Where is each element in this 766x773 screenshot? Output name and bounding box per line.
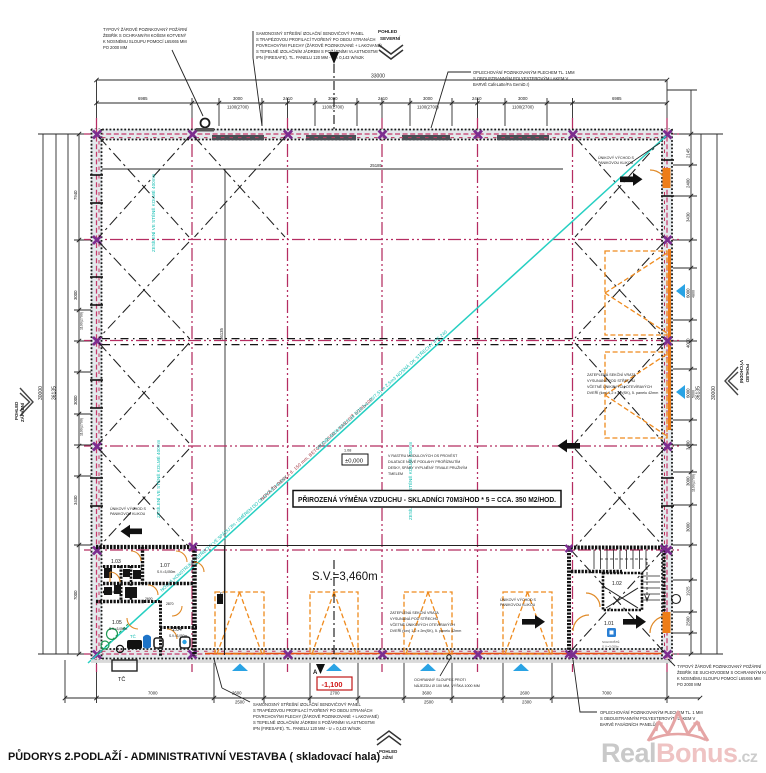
svg-text:S OBOUSTRANNÝM POLYESTEROVÝM L: S OBOUSTRANNÝM POLYESTEROVÝM LAKEM V xyxy=(473,76,569,81)
svg-text:SCHODIŠTĚ: SCHODIŠTĚ xyxy=(602,639,620,644)
svg-text:POHLED: POHLED xyxy=(14,402,19,420)
svg-text:SAMONOSNÝ STŘEŠNÍ IZOLAČNÍ SEN: SAMONOSNÝ STŘEŠNÍ IZOLAČNÍ SENDVIČOVÝ PA… xyxy=(253,702,361,707)
svg-text:2300: 2300 xyxy=(522,700,532,705)
svg-text:2500: 2500 xyxy=(424,700,434,705)
svg-text:33000: 33000 xyxy=(371,74,385,80)
svg-text:25185: 25185 xyxy=(370,163,383,168)
svg-text:1925: 1925 xyxy=(686,586,691,596)
svg-text:2145: 2145 xyxy=(686,148,691,158)
svg-text:S TEPELNĚ IZOLAČNÍM JÁDREM S P: S TEPELNĚ IZOLAČNÍM JÁDREM S POŽÁRNÍMI V… xyxy=(253,720,375,725)
svg-text:OPLECHOVÁNÍ POZINKOVANÝM PLECH: OPLECHOVÁNÍ POZINKOVANÝM PLECHEM TL. 1 M… xyxy=(600,710,703,715)
svg-text:ZATEPLENÁ SEKČNÍ VRATA: ZATEPLENÁ SEKČNÍ VRATA xyxy=(587,372,636,377)
svg-text:1.04: 1.04 xyxy=(172,627,182,633)
svg-text:1100(2700): 1100(2700) xyxy=(512,105,534,110)
svg-text:2600: 2600 xyxy=(232,691,242,696)
svg-text:3000: 3000 xyxy=(328,96,338,101)
svg-text:30000: 30000 xyxy=(38,386,44,400)
svg-text:3000: 3000 xyxy=(686,476,691,486)
svg-text:JIŽNÍ: JIŽNÍ xyxy=(382,755,394,760)
svg-text:TYPOVÝ ŽÁROVĚ POZINKOVANÝ POŽÁ: TYPOVÝ ŽÁROVĚ POZINKOVANÝ POŽÁRNÍ xyxy=(103,27,188,32)
svg-text:1100(2700): 1100(2700) xyxy=(227,105,249,110)
svg-text:2400: 2400 xyxy=(686,178,691,188)
svg-text:TYPOVÝ ŽÁROVĚ POZINKOVANÝ POŽÁ: TYPOVÝ ŽÁROVĚ POZINKOVANÝ POŽÁRNÍ xyxy=(677,664,762,669)
svg-text:TČ: TČ xyxy=(130,634,136,639)
svg-text:TČ: TČ xyxy=(118,676,125,683)
svg-text:3000: 3000 xyxy=(423,96,433,101)
svg-text:PO 2000 MM: PO 2000 MM xyxy=(103,45,128,50)
svg-text:S.V.=3,050m: S.V.=3,050m xyxy=(157,570,176,574)
svg-text:ÚNIKOVÝ VÝCHOD S: ÚNIKOVÝ VÝCHOD S xyxy=(598,155,635,160)
svg-text:6000: 6000 xyxy=(686,288,691,298)
svg-text:S.V.=3,050m: S.V.=3,050m xyxy=(169,634,188,638)
svg-text:6000: 6000 xyxy=(686,388,691,398)
svg-text:ZESÍLENÍ VE STĚNĚ KOLMÉ 400mm: ZESÍLENÍ VE STĚNĚ KOLMÉ 400mm xyxy=(154,439,161,518)
svg-text:PŮDORYS 2.PODLAŽÍ - ADMINISTRA: PŮDORYS 2.PODLAŽÍ - ADMINISTRATIVNÍ VEST… xyxy=(8,749,381,763)
svg-text:RealBonus.cz: RealBonus.cz xyxy=(601,738,758,768)
svg-text:7940: 7940 xyxy=(73,190,78,200)
svg-text:2600: 2600 xyxy=(520,691,530,696)
svg-text:ŽEBŘÍK SE SUCHOVODEM S OCHRANN: ŽEBŘÍK SE SUCHOVODEM S OCHRANNÝM KOŠ xyxy=(677,670,766,675)
svg-text:ÚNIKOVÝ VÝCHOD S: ÚNIKOVÝ VÝCHOD S xyxy=(110,506,147,511)
svg-text:OCHRANNÝ SLOUPEK PROTI: OCHRANNÝ SLOUPEK PROTI xyxy=(414,678,466,682)
svg-text:ŽEBŘÍK S OCHRANNÝM KOŠEM KOTVE: ŽEBŘÍK S OCHRANNÝM KOŠEM KOTVENÝ xyxy=(103,33,187,38)
svg-text:7000: 7000 xyxy=(73,590,78,600)
svg-text:7000: 7000 xyxy=(602,691,612,696)
svg-text:-1,100: -1,100 xyxy=(322,680,343,689)
svg-text:POHLED: POHLED xyxy=(378,29,398,34)
svg-text:S TRAPÉZOVOU PROFILACÍ TVOŘENÝ: S TRAPÉZOVOU PROFILACÍ TVOŘENÝ PO OBOU S… xyxy=(253,708,373,713)
svg-text:PANIKOVOU KLIKOU: PANIKOVOU KLIKOU xyxy=(500,603,536,607)
svg-text:2410: 2410 xyxy=(378,96,388,101)
svg-text:BARVĚ CafeLatte/Fa GemiD.r): BARVĚ CafeLatte/Fa GemiD.r) xyxy=(473,82,530,87)
svg-text:1100(2700): 1100(2700) xyxy=(322,105,344,110)
svg-text:1.02: 1.02 xyxy=(612,581,622,587)
svg-text:ÚNIKOVÝ VÝCHOD S: ÚNIKOVÝ VÝCHOD S xyxy=(500,597,537,602)
svg-text:30000: 30000 xyxy=(711,386,717,400)
svg-text:1100(2700): 1100(2700) xyxy=(80,418,84,436)
svg-text:K NOSNÉMU SLOUPU POMOCÍ L65X65: K NOSNÉMU SLOUPU POMOCÍ L65X65 MM xyxy=(103,39,187,44)
svg-text:36135: 36135 xyxy=(696,386,702,400)
svg-text:3000: 3000 xyxy=(73,290,78,300)
svg-text:36135: 36135 xyxy=(52,386,58,400)
svg-text:2500: 2500 xyxy=(235,700,245,705)
svg-text:VČETNĚ ÚNIKOVÝCH OTEVÍRAVÝCH: VČETNĚ ÚNIKOVÝCH OTEVÍRAVÝCH xyxy=(390,622,455,627)
svg-text:ZESÍLENÍ VE STĚNĚ KOLMÉ 400mm: ZESÍLENÍ VE STĚNĚ KOLMÉ 400mm xyxy=(149,173,156,252)
svg-text:1100(2700): 1100(2700) xyxy=(80,312,84,330)
svg-text:BARVĚ FASÁDNÍCH PANELŮ: BARVĚ FASÁDNÍCH PANELŮ xyxy=(600,722,656,727)
svg-text:1.07: 1.07 xyxy=(160,563,170,569)
svg-text:4800: 4800 xyxy=(692,290,696,298)
svg-text:VYSUNANÁ POD STŘECHU: VYSUNANÁ POD STŘECHU xyxy=(390,616,438,621)
svg-text:NÁJEZDU Ø 100 MM, VÝŠKA 1000 M: NÁJEZDU Ø 100 MM, VÝŠKA 1000 MM xyxy=(414,683,480,688)
svg-text:S.V.=3,460m: S.V.=3,460m xyxy=(312,571,378,583)
svg-text:ZATEPLENÁ SEKČNÍ VRATA: ZATEPLENÁ SEKČNÍ VRATA xyxy=(390,610,439,615)
svg-text:3000: 3000 xyxy=(73,395,78,405)
svg-text:3000: 3000 xyxy=(518,96,528,101)
svg-text:1685: 1685 xyxy=(220,592,224,600)
svg-text:1.01: 1.01 xyxy=(604,621,614,627)
svg-text:A: A xyxy=(313,670,318,676)
svg-text:S TEPELNĚ IZOLAČNÍM JÁDREM S P: S TEPELNĚ IZOLAČNÍM JÁDREM S POŽÁRNÍMI V… xyxy=(256,49,378,54)
svg-text:2500: 2500 xyxy=(686,616,691,626)
svg-text:SEVERNÍ: SEVERNÍ xyxy=(380,34,401,41)
svg-text:2410: 2410 xyxy=(283,96,293,101)
svg-text:1.08: 1.08 xyxy=(344,449,351,453)
svg-text:PANIKOVOU KLIKOU: PANIKOVOU KLIKOU xyxy=(110,512,146,516)
svg-text:OPLECHOVÁNÍ POZINKOVANÝM PLECH: OPLECHOVÁNÍ POZINKOVANÝM PLECHEM TL. 1MM xyxy=(473,70,575,75)
svg-text:ZÁPADNÍ: ZÁPADNÍ xyxy=(20,402,25,422)
svg-text:3000: 3000 xyxy=(233,96,243,101)
svg-text:POVRCHOVÝMI PLECHY (ŽÁROVĚ POZ: POVRCHOVÝMI PLECHY (ŽÁROVĚ POZINKOVANÉ +… xyxy=(256,43,382,48)
svg-text:2870: 2870 xyxy=(166,602,174,606)
svg-text:6985: 6985 xyxy=(612,96,622,101)
svg-text:K NOSNÉMU SLOUPU POMOCÍ L65X65: K NOSNÉMU SLOUPU POMOCÍ L65X65 MM xyxy=(677,676,761,681)
svg-text:DVEŘÍ (šxv) 1,2 x 2m(SK), 5. p: DVEŘÍ (šxv) 1,2 x 2m(SK), 5. panelu 42mm xyxy=(390,628,461,633)
svg-text:DESKY, SPÁRY VYPLNĚNÝ TRVALE P: DESKY, SPÁRY VYPLNĚNÝ TRVALE PRUŽNÝM xyxy=(388,465,467,470)
svg-text:POHLED: POHLED xyxy=(745,364,750,382)
svg-text:2410: 2410 xyxy=(472,96,482,101)
svg-text:VÝCHODNÍ: VÝCHODNÍ xyxy=(739,360,744,384)
svg-text:POVRCHOVÝMI PLECHY (ŽÁROVĚ POZ: POVRCHOVÝMI PLECHY (ŽÁROVĚ POZINKOVANÉ +… xyxy=(253,714,379,719)
svg-text:3600: 3600 xyxy=(422,691,432,696)
svg-text:1.05: 1.05 xyxy=(112,620,122,626)
svg-text:1100(2700): 1100(2700) xyxy=(692,474,696,492)
svg-text:7000: 7000 xyxy=(148,691,158,696)
svg-text:1.03: 1.03 xyxy=(111,559,121,565)
svg-text:4000: 4000 xyxy=(686,338,691,348)
svg-text:1100(2700): 1100(2700) xyxy=(417,105,439,110)
svg-text:V RASTRU MODULOVÝCH OS PROVÉST: V RASTRU MODULOVÝCH OS PROVÉST xyxy=(388,453,458,458)
svg-text:PO 2000 MM: PO 2000 MM xyxy=(677,682,702,687)
svg-text:S TRAPÉZOVOU PROFILACÍ TVOŘENÝ: S TRAPÉZOVOU PROFILACÍ TVOŘENÝ PO OBOU S… xyxy=(256,37,376,42)
svg-text:VČETNĚ ÚNIKOVÝCH OTEVÍRAVÝCH: VČETNĚ ÚNIKOVÝCH OTEVÍRAVÝCH xyxy=(587,384,652,389)
svg-text:2700: 2700 xyxy=(330,691,340,696)
svg-text:VYSUNANÁ POD STŘECHU: VYSUNANÁ POD STŘECHU xyxy=(587,378,635,383)
svg-text:IPN (FIRESAFE). TL. PANELU 120: IPN (FIRESAFE). TL. PANELU 120 MM - U = … xyxy=(253,726,361,731)
svg-text:3000: 3000 xyxy=(686,522,691,532)
svg-text:DILATACE NOVÉ PODLAHY PROŘÍZNU: DILATACE NOVÉ PODLAHY PROŘÍZNUTÍM xyxy=(388,459,460,464)
svg-text:POHLED: POHLED xyxy=(379,749,397,754)
svg-text:2600: 2600 xyxy=(145,597,153,601)
svg-text:3430: 3430 xyxy=(686,440,691,450)
svg-text:DVEŘÍ (šxv) 1,2 x 2m(SK), 5. p: DVEŘÍ (šxv) 1,2 x 2m(SK), 5. panelu 42mm xyxy=(587,390,658,395)
svg-text:TMELEM: TMELEM xyxy=(388,472,403,476)
svg-text:PŘIROZENÁ VÝMĚNA VZDUCHU - SKL: PŘIROZENÁ VÝMĚNA VZDUCHU - SKLADNÍCI 70M… xyxy=(298,495,556,504)
svg-text:3430: 3430 xyxy=(686,212,691,222)
svg-text:S.V.=3,050m: S.V.=3,050m xyxy=(109,627,128,631)
svg-text:S.V.=3,050m: S.V.=3,050m xyxy=(602,645,620,649)
svg-text:±0,000: ±0,000 xyxy=(345,458,364,464)
svg-text:SAMONOSNÝ STŘEŠNÍ IZOLAČNÍ SEN: SAMONOSNÝ STŘEŠNÍ IZOLAČNÍ SENDVIČOVÝ PA… xyxy=(256,31,364,36)
svg-text:3430: 3430 xyxy=(73,495,78,505)
svg-text:6985: 6985 xyxy=(138,96,148,101)
svg-text:IPN (FIRESAFE). TL. PANELU 120: IPN (FIRESAFE). TL. PANELU 120 MM - U = … xyxy=(256,55,364,60)
